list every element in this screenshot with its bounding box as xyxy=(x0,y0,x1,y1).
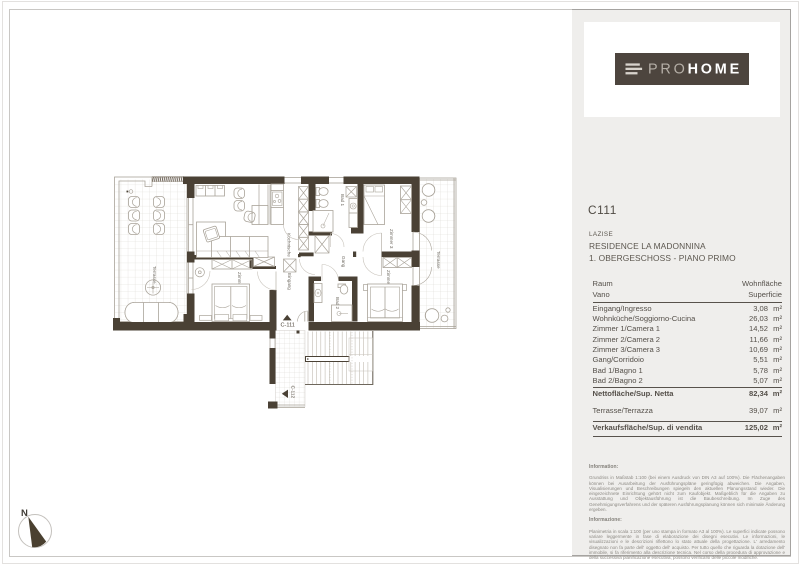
svg-text:Bad 2: Bad 2 xyxy=(335,297,340,309)
svg-text:Terrasse: Terrasse xyxy=(152,266,157,284)
svg-text:Bad 1: Bad 1 xyxy=(340,194,345,206)
svg-text:C-112: C-112 xyxy=(290,386,296,399)
svg-text:Gang: Gang xyxy=(341,256,346,268)
svg-text:N: N xyxy=(21,508,28,519)
svg-text:Kochnische: Kochnische xyxy=(287,233,292,257)
svg-text:C-111: C-111 xyxy=(281,323,295,329)
svg-text:Terrasse: Terrasse xyxy=(436,251,441,269)
svg-text:Eingang: Eingang xyxy=(287,273,292,290)
svg-text:Zimmer 3: Zimmer 3 xyxy=(389,229,394,249)
